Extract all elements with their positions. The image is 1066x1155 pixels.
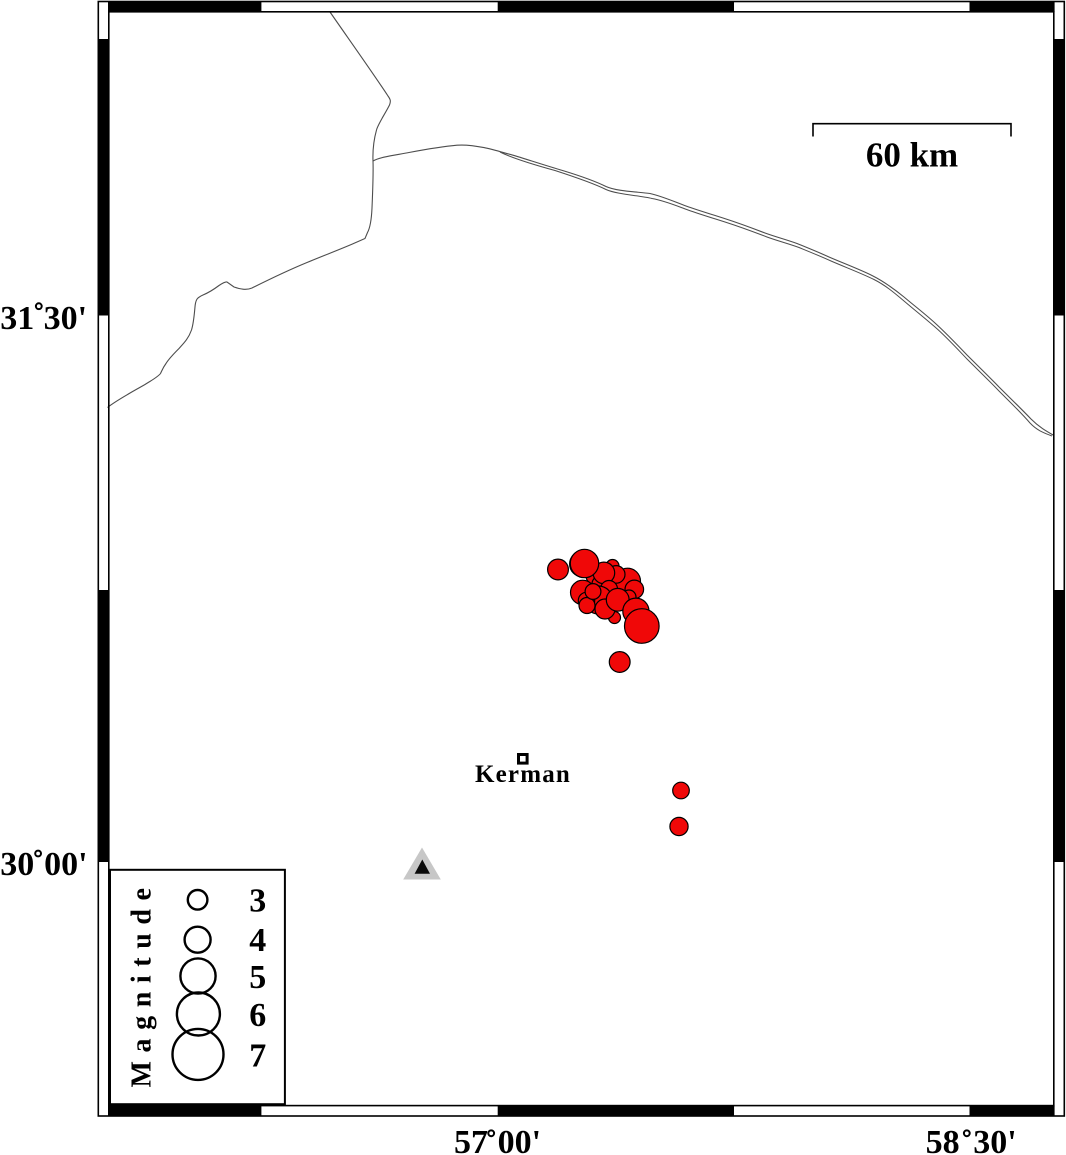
svg-text:30: 30 [0, 846, 34, 883]
svg-text:4: 4 [249, 922, 266, 959]
svg-text:60 km: 60 km [866, 136, 958, 175]
svg-text:00': 00' [498, 1124, 541, 1155]
svg-text:7: 7 [249, 1038, 266, 1075]
svg-text:30': 30' [973, 1124, 1016, 1155]
svg-text:00': 00' [44, 846, 87, 883]
svg-text:30': 30' [44, 300, 87, 337]
svg-text:57: 57 [454, 1124, 488, 1155]
svg-text:5: 5 [249, 959, 266, 996]
svg-text:58: 58 [926, 1124, 960, 1155]
svg-text:Magnitude: Magnitude [127, 879, 158, 1087]
svg-text:Kerman: Kerman [475, 761, 571, 788]
svg-text:31: 31 [0, 300, 34, 337]
svg-text:3: 3 [249, 882, 266, 919]
svg-text:6: 6 [249, 997, 266, 1034]
